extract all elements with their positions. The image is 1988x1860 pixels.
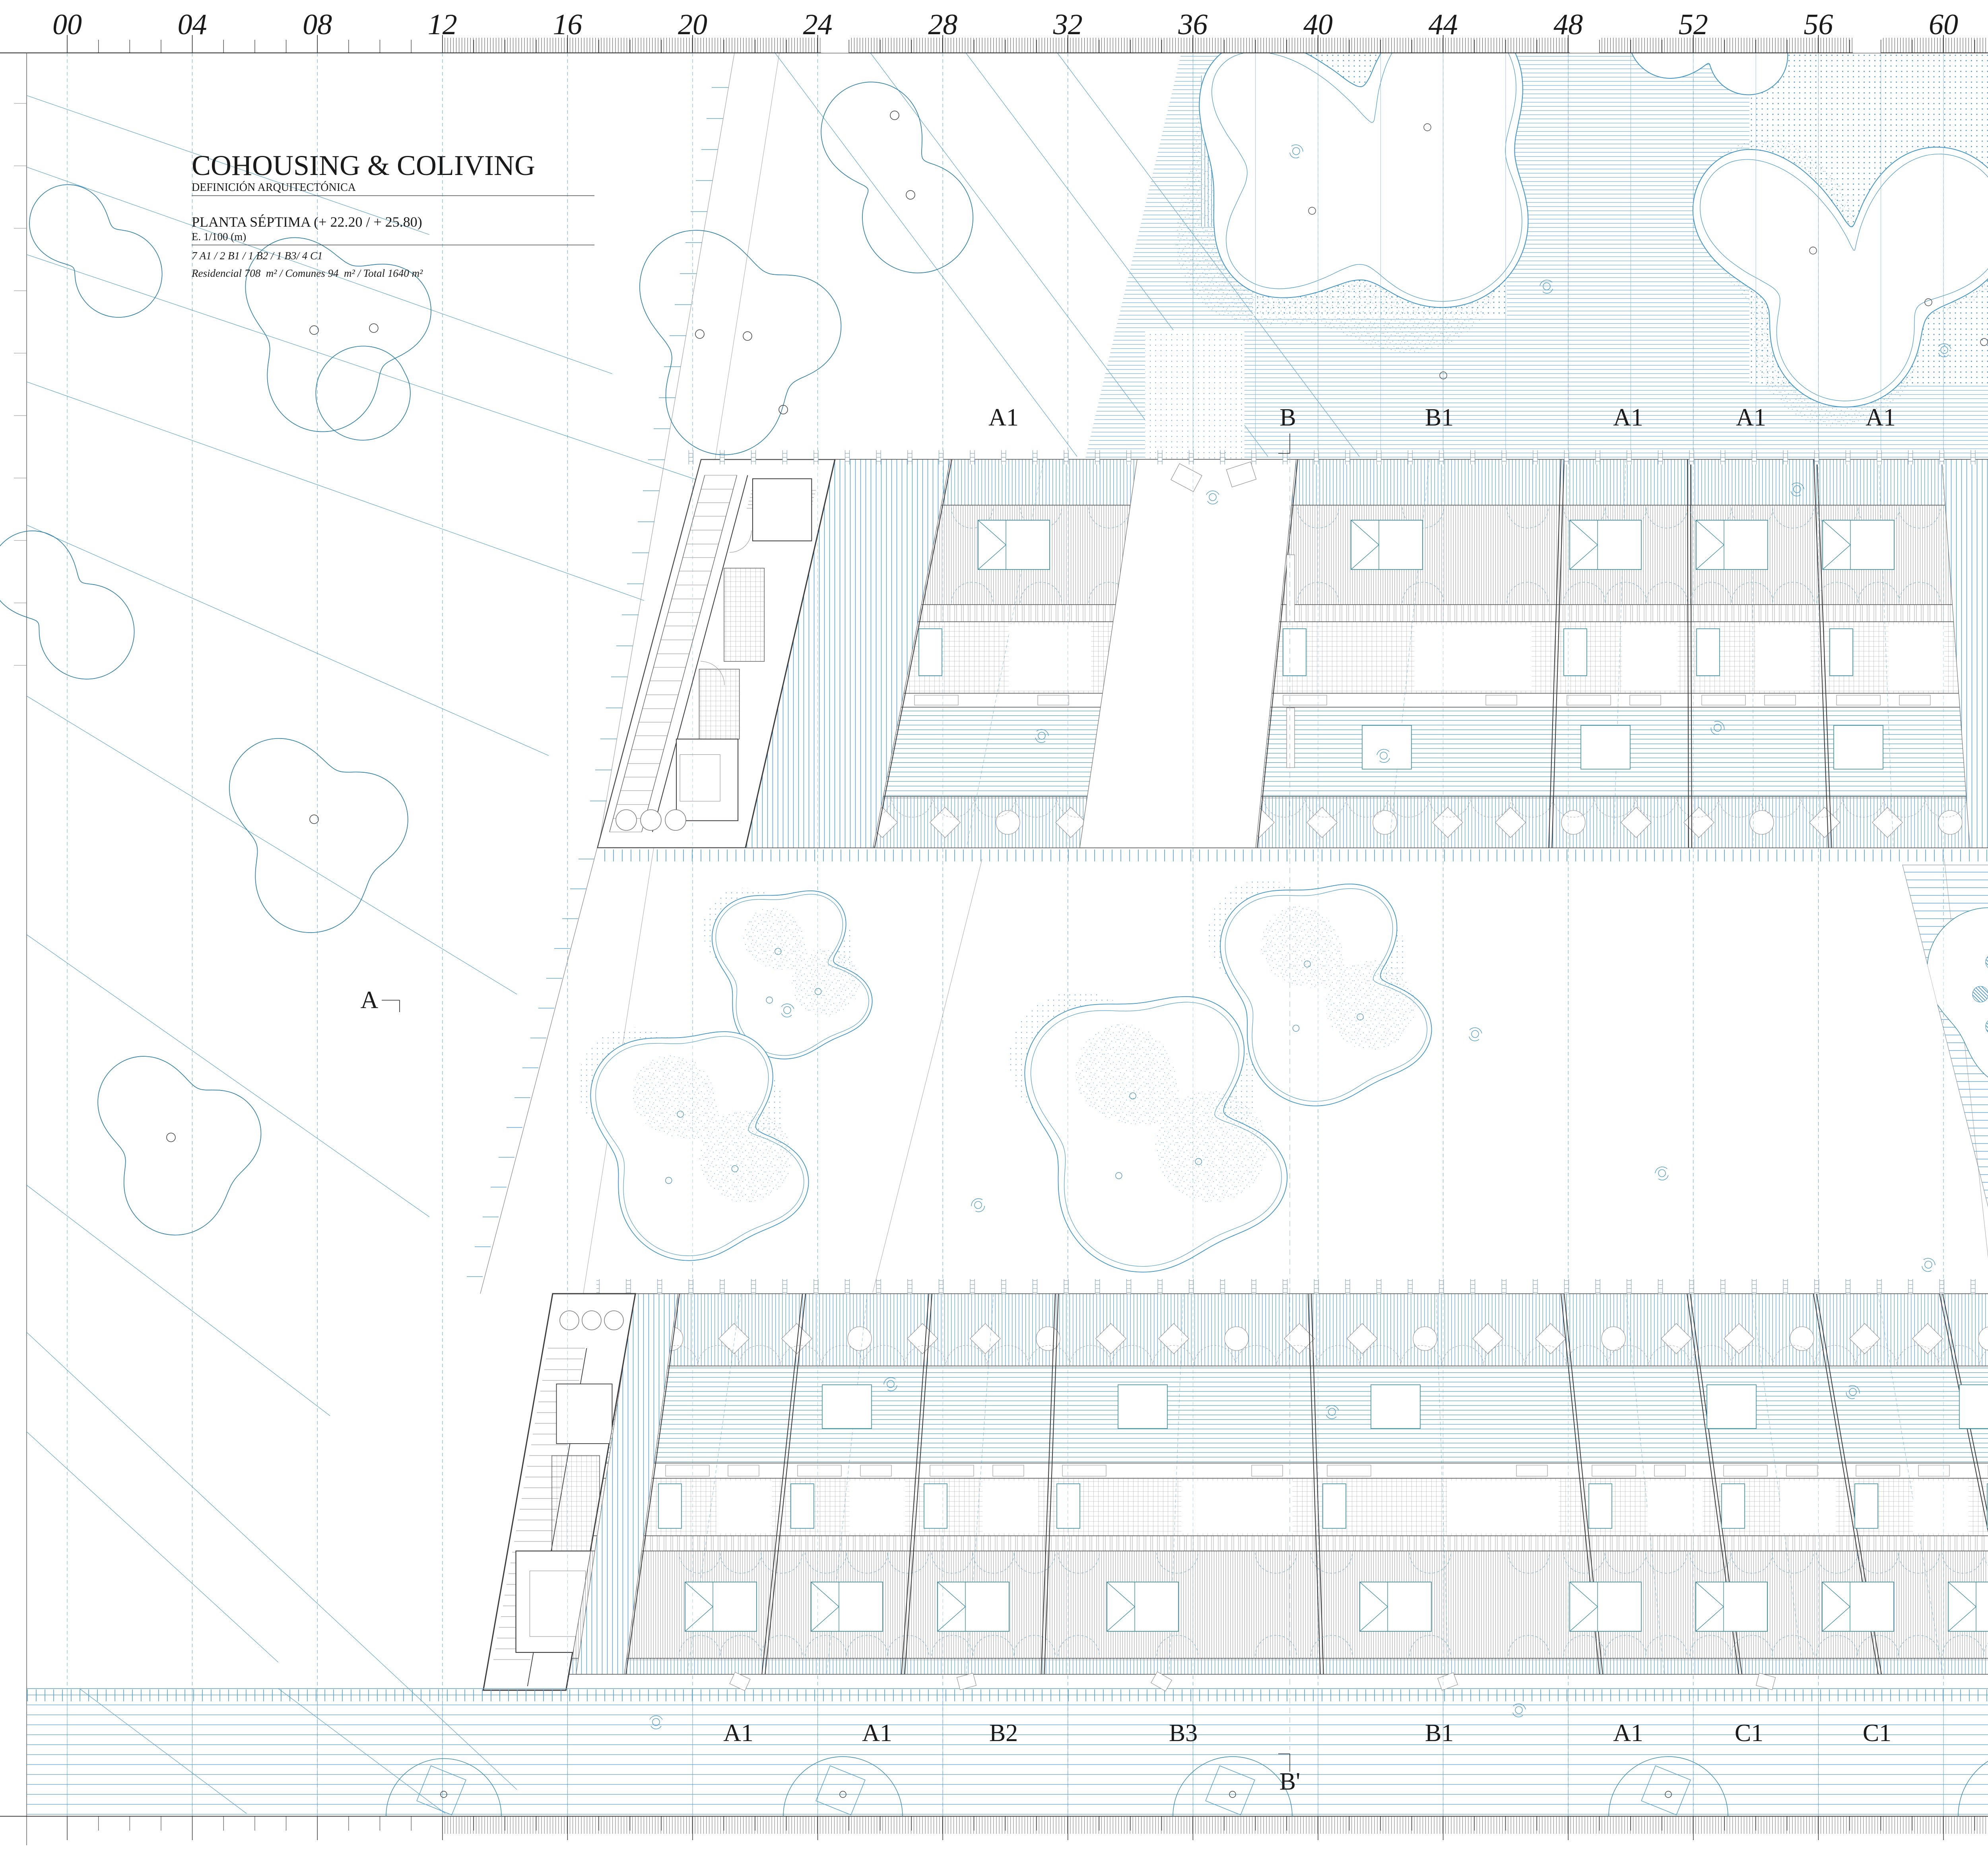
svg-text:44: 44	[1429, 8, 1458, 41]
svg-text:A: A	[361, 987, 379, 1014]
svg-text:16: 16	[553, 8, 582, 41]
svg-text:52: 52	[1679, 8, 1708, 41]
svg-text:04: 04	[178, 8, 207, 41]
svg-text:B': B'	[1279, 1768, 1301, 1795]
svg-text:A1: A1	[862, 1720, 892, 1747]
svg-text:12: 12	[428, 8, 457, 41]
svg-text:A1: A1	[1736, 404, 1766, 431]
svg-text:C1: C1	[1735, 1720, 1763, 1747]
svg-text:B1: B1	[1425, 404, 1454, 431]
svg-text:A1: A1	[1613, 1720, 1643, 1747]
svg-text:B2: B2	[989, 1720, 1018, 1747]
svg-text:A1: A1	[988, 404, 1019, 431]
svg-text:7 A1 / 2 B1 / 1 B2 / 1 B3/ 4 C: 7 A1 / 2 B1 / 1 B2 / 1 B3/ 4 C1	[192, 250, 323, 262]
svg-text:24: 24	[803, 8, 833, 41]
svg-text:A1: A1	[1866, 404, 1896, 431]
svg-text:40: 40	[1303, 8, 1333, 41]
svg-text:36: 36	[1178, 8, 1208, 41]
svg-text:COHOUSING & COLIVING: COHOUSING & COLIVING	[192, 150, 535, 181]
svg-text:A1: A1	[1613, 404, 1643, 431]
svg-text:60: 60	[1929, 8, 1958, 41]
svg-text:PLANTA SÉPTIMA (+ 22.20 / + 25: PLANTA SÉPTIMA (+ 22.20 / + 25.80)	[192, 214, 422, 230]
svg-text:56: 56	[1804, 8, 1833, 41]
svg-text:A1: A1	[723, 1720, 753, 1747]
svg-text:32: 32	[1053, 8, 1083, 41]
svg-text:20: 20	[678, 8, 707, 41]
svg-text:28: 28	[928, 8, 957, 41]
svg-text:B1: B1	[1425, 1720, 1454, 1747]
svg-text:B: B	[1279, 404, 1296, 431]
svg-text:Residencial 708 m² / Comunes: Residencial 708 m² / Comunes 94 m² / Tot…	[191, 267, 423, 279]
svg-text:08: 08	[303, 8, 332, 41]
svg-text:00: 00	[52, 8, 82, 41]
svg-text:B3: B3	[1169, 1720, 1198, 1747]
svg-text:C1: C1	[1863, 1720, 1891, 1747]
svg-text:E. 1/100 (m): E. 1/100 (m)	[192, 231, 246, 243]
svg-text:48: 48	[1553, 8, 1583, 41]
svg-text:DEFINICIÓN ARQUITECTÓNICA: DEFINICIÓN ARQUITECTÓNICA	[192, 181, 356, 194]
